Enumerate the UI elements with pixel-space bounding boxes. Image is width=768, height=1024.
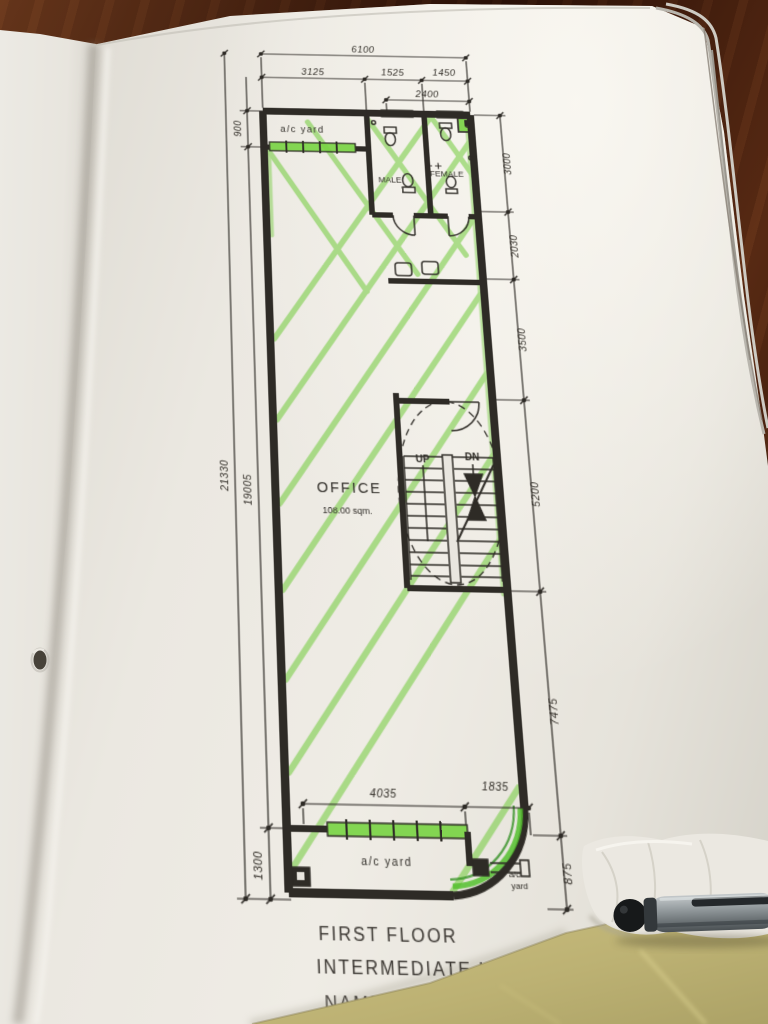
desk-objects: [0, 0, 768, 1024]
photo-of-floor-plan: { "plan": { "title": { "line1": "FIRST F…: [0, 0, 768, 1024]
pen-grip-ring: [643, 898, 657, 932]
